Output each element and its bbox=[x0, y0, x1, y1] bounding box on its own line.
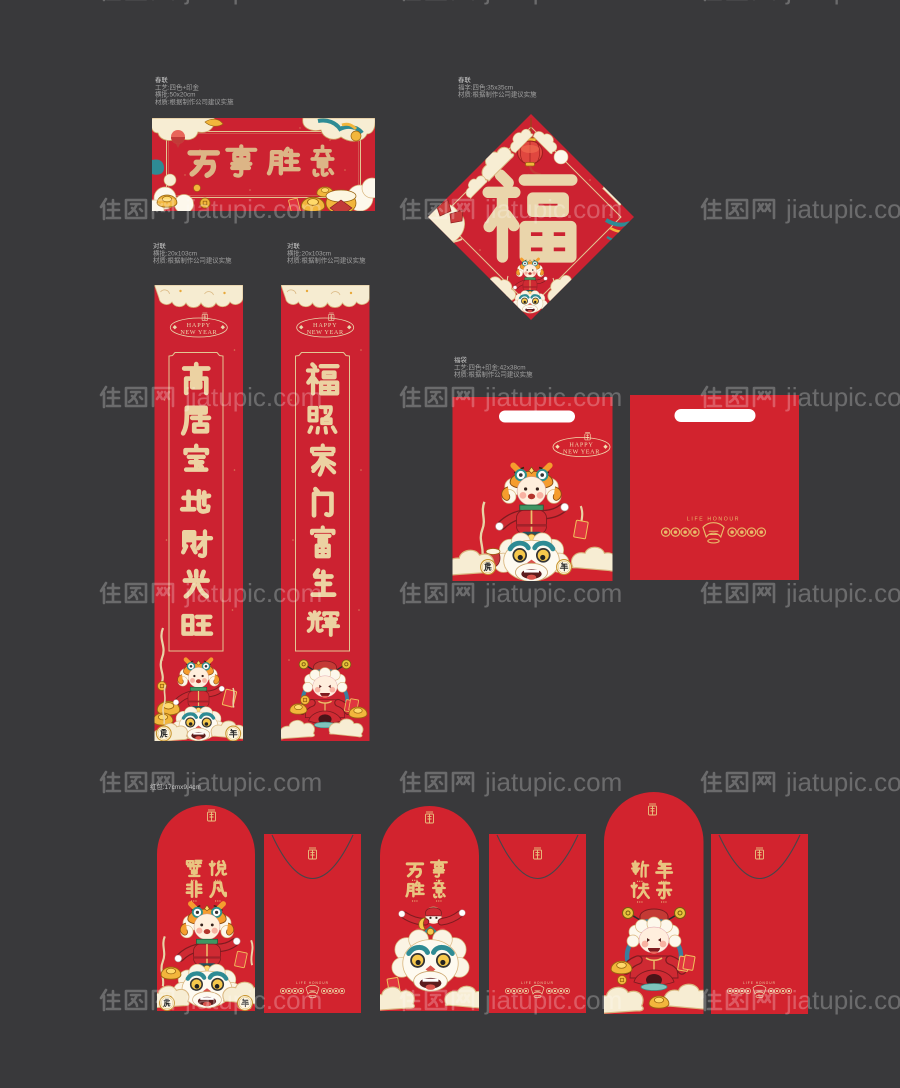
svg-text:横批:20x103cm: 横批:20x103cm bbox=[153, 248, 197, 257]
svg-text:材质:根据制作公司建议实施: 材质:根据制作公司建议实施 bbox=[454, 370, 533, 379]
svg-text:材质:根据制作公司建议实施: 材质:根据制作公司建议实施 bbox=[155, 97, 234, 106]
svg-text:对联: 对联 bbox=[153, 241, 166, 250]
svg-text:对联: 对联 bbox=[287, 241, 300, 250]
svg-text:工艺:四色+印金: 工艺:四色+印金 bbox=[155, 82, 199, 91]
svg-text:春联: 春联 bbox=[458, 75, 471, 84]
svg-text:福字:四色:35x35cm: 福字:四色:35x35cm bbox=[458, 82, 513, 91]
svg-text:横批:50x20cm: 横批:50x20cm bbox=[155, 90, 196, 99]
svg-text:福袋: 福袋 bbox=[454, 355, 467, 364]
svg-text:春联: 春联 bbox=[155, 75, 168, 84]
svg-text:材质:根据制作公司建议实施: 材质:根据制作公司建议实施 bbox=[287, 256, 366, 265]
svg-text:材质:根据制作公司建议实施: 材质:根据制作公司建议实施 bbox=[153, 256, 232, 265]
svg-text:横批:20x103cm: 横批:20x103cm bbox=[287, 248, 331, 257]
svg-text:工艺:四色+印金:42x38cm: 工艺:四色+印金:42x38cm bbox=[454, 362, 526, 371]
svg-text:材质:根据制作公司建议实施: 材质:根据制作公司建议实施 bbox=[458, 90, 537, 99]
